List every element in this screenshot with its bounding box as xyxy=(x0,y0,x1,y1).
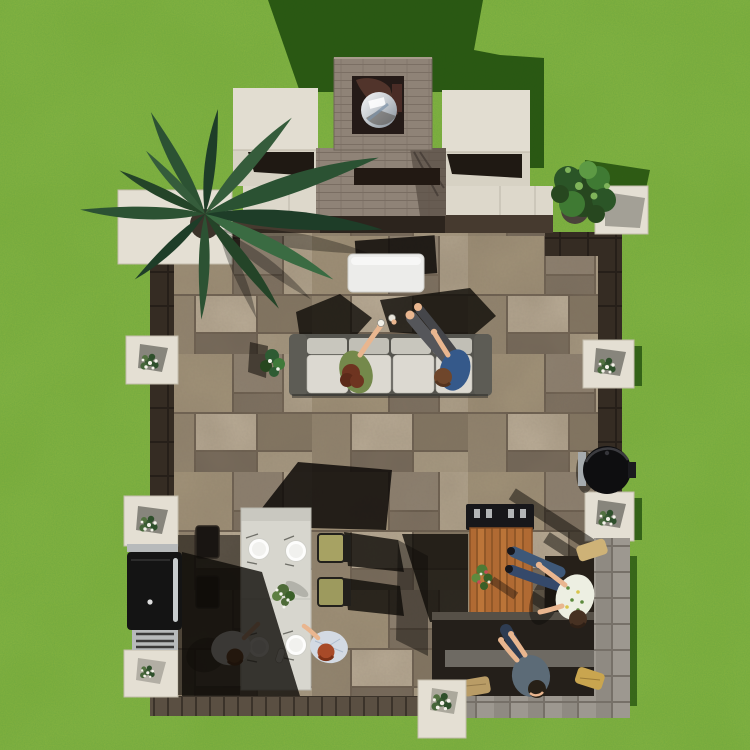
bench-planter xyxy=(418,680,466,738)
top-right-wall xyxy=(545,232,622,256)
bar-hutch xyxy=(466,504,534,530)
grill-cart xyxy=(132,630,178,650)
bench-back-column xyxy=(594,538,630,718)
patio-scene-canvas xyxy=(0,0,750,750)
planter-cap xyxy=(124,650,178,697)
dining-chair xyxy=(318,534,351,562)
planter-cap xyxy=(126,336,178,384)
ottoman xyxy=(348,254,424,292)
dining-chair xyxy=(196,526,219,558)
firebox-slot xyxy=(354,168,440,185)
planter-cap xyxy=(585,492,634,541)
aerial-patio-photo xyxy=(0,0,750,750)
planter-cap xyxy=(124,496,178,546)
planter-cap xyxy=(583,340,634,388)
dining-chair xyxy=(318,578,351,606)
